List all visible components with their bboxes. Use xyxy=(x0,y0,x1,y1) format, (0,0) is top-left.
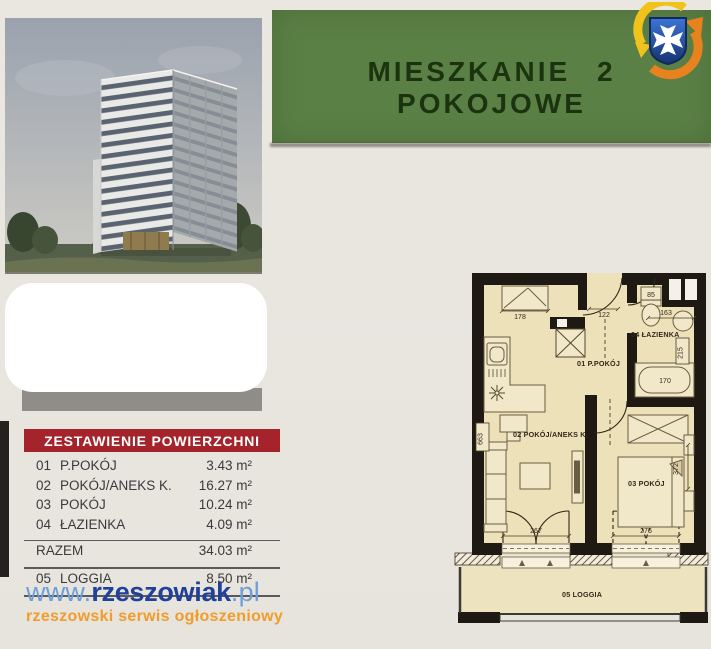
building-photo xyxy=(5,18,262,274)
yellow-arrowhead xyxy=(635,42,651,58)
total-area: 34.03 m² xyxy=(199,543,252,558)
cloud xyxy=(15,60,115,96)
living-label: 02 POKÓJ/ANEKS K. xyxy=(513,430,588,439)
dim-bath-width: 163 xyxy=(660,310,672,317)
table-row: 04 ŁAZIENKA 4.09 m² xyxy=(24,517,280,537)
bedroom-label: 03 POKÓJ xyxy=(628,479,665,488)
closet xyxy=(502,286,548,310)
total-label: RAZEM xyxy=(36,543,199,558)
website-tagline: rzeszowski serwis ogłoszeniowy xyxy=(26,608,283,626)
duct-slot xyxy=(557,319,567,327)
dim-tub: 170 xyxy=(659,378,671,385)
toilet-icon xyxy=(642,304,660,326)
url-www: www. xyxy=(26,577,91,607)
tower-left-face xyxy=(101,70,173,252)
dim-living-door: 267 xyxy=(530,528,542,535)
bedroom-furniture xyxy=(618,415,694,527)
row-area: 10.24 m² xyxy=(199,497,252,512)
dim-hall: 122 xyxy=(598,312,610,319)
table-row: 02 POKÓJ/ANEKS K. 16.27 m² xyxy=(24,478,280,498)
flyer-page: MIESZKANIE 2 POKOJOWE ZESTAWIENIE POWIER… xyxy=(0,0,711,649)
shaft-opening xyxy=(685,279,697,300)
table-row: 01 P.POKÓJ 3.43 m² xyxy=(24,458,280,478)
hall-label: 01 P.POKÓJ xyxy=(577,359,620,368)
nightstand xyxy=(684,491,694,511)
dim-bedroom-depth: 372 xyxy=(673,463,680,475)
shaft-x-box xyxy=(556,329,585,357)
stove-burner-icon xyxy=(489,385,505,401)
url-tld: .pl xyxy=(231,577,260,607)
row-area: 4.09 m² xyxy=(206,517,252,532)
dim-kitchen: 663 xyxy=(478,433,485,445)
row-number: 02 xyxy=(36,478,60,493)
coffee-table xyxy=(520,463,550,489)
page-edge-strip xyxy=(0,421,9,577)
tv-icon xyxy=(575,461,580,493)
redaction-blob xyxy=(5,283,267,392)
dim-shaft: 85 xyxy=(647,292,655,299)
loggia-label: 05 LOGGIA xyxy=(562,590,602,599)
nightstand xyxy=(684,435,694,455)
divider xyxy=(24,540,280,541)
total-row: RAZEM 34.03 m² xyxy=(24,543,280,563)
rzeszowiak-crest-icon xyxy=(626,2,710,80)
dim-bath-depth: 215 xyxy=(678,347,685,359)
area-summary-table: ZESTAWIENIE POWIERZCHNI 01 P.POKÓJ 3.43 … xyxy=(24,429,280,599)
tower-wing xyxy=(93,159,101,254)
table-row: 03 POKÓJ 10.24 m² xyxy=(24,497,280,517)
table-header: ZESTAWIENIE POWIERZCHNI xyxy=(24,429,280,452)
washbasin-icon xyxy=(673,311,693,331)
website-url: www.rzeszowiak.pl xyxy=(26,578,283,607)
table-body: 01 P.POKÓJ 3.43 m² 02 POKÓJ/ANEKS K. 16.… xyxy=(24,452,280,597)
row-name: POKÓJ/ANEKS K. xyxy=(60,478,199,493)
row-name: POKÓJ xyxy=(60,497,199,512)
url-brand: rzeszowiak xyxy=(91,577,231,607)
bath-label: 04 ŁAZIENKA xyxy=(631,330,680,339)
shaft-opening xyxy=(669,279,681,300)
row-name: P.POKÓJ xyxy=(60,458,206,473)
dim-bedroom-door: 275 xyxy=(640,528,652,535)
website-logo: www.rzeszowiak.pl rzeszowski serwis ogło… xyxy=(26,578,283,626)
row-name: ŁAZIENKA xyxy=(60,517,206,532)
dim-closet: 178 xyxy=(514,314,526,321)
floor-plan: 01 P.POKÓJ 02 POKÓJ/ANEKS K. 03 POKÓJ 04… xyxy=(450,265,711,635)
banner-shadow xyxy=(270,143,711,147)
sink-icon xyxy=(490,347,504,362)
row-area: 16.27 m² xyxy=(199,478,252,493)
tree xyxy=(32,226,58,254)
divider xyxy=(24,567,280,569)
sofa xyxy=(486,449,506,525)
row-area: 3.43 m² xyxy=(206,458,252,473)
tower-right-face xyxy=(173,70,237,252)
row-number: 04 xyxy=(36,517,60,532)
row-number: 03 xyxy=(36,497,60,512)
row-number: 01 xyxy=(36,458,60,473)
building-base xyxy=(123,232,169,250)
